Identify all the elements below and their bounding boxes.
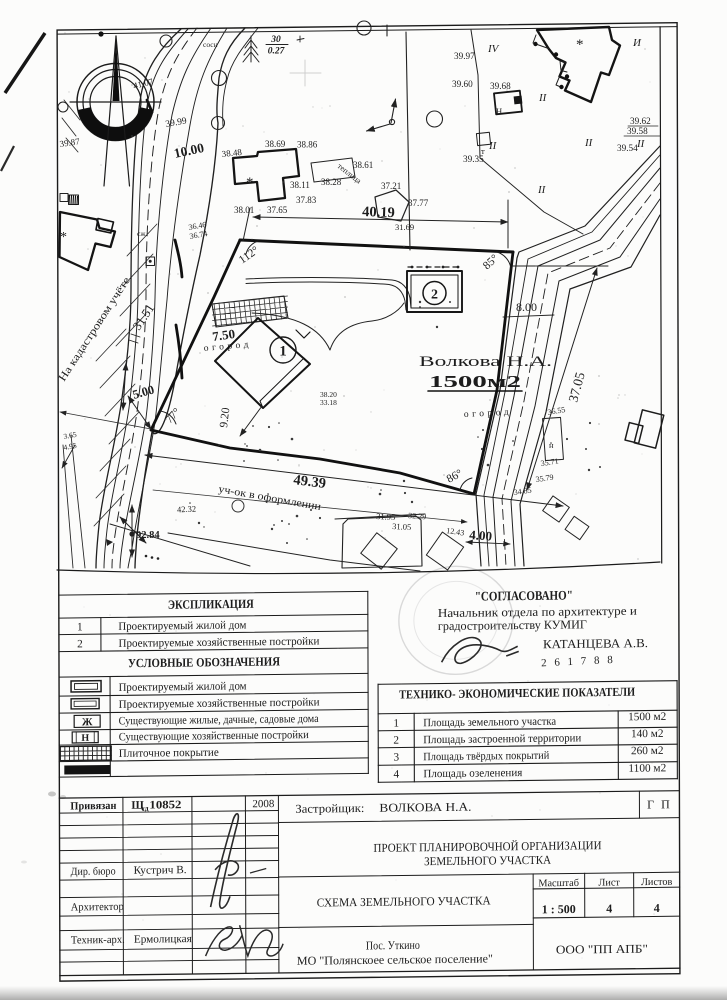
svg-text:37.65: 37.65 [267, 205, 288, 215]
svg-text:*: * [576, 37, 584, 53]
svg-text:Лист: Лист [598, 877, 620, 888]
svg-text:9.20: 9.20 [218, 407, 232, 429]
svg-text:КАТАНЦЕВА А.В.: КАТАНЦЕВА А.В. [543, 636, 648, 651]
svg-text:30: 30 [270, 35, 281, 45]
svg-text:сд: сд [141, 804, 148, 813]
svg-text:ООО "ПП АПБ": ООО "ПП АПБ" [556, 942, 648, 957]
svg-text:39.97: 39.97 [454, 51, 475, 61]
svg-text:1 : 500: 1 : 500 [542, 902, 576, 916]
svg-text:II: II [538, 92, 548, 104]
svg-text:42.32: 42.32 [177, 503, 197, 514]
svg-text:37.77: 37.77 [408, 198, 429, 208]
svg-text:10852: 10852 [149, 799, 181, 811]
svg-text:*: * [246, 175, 254, 191]
svg-text:38.61: 38.61 [353, 160, 373, 170]
svg-text:СХЕМА ЗЕМЕЛЬНОГО УЧАСТКА: СХЕМА ЗЕМЕЛЬНОГО УЧАСТКА [317, 893, 491, 909]
svg-text:Площадь озеленения: Площадь озеленения [423, 767, 522, 780]
svg-text:н: н [549, 440, 554, 450]
svg-text:39.68: 39.68 [490, 81, 511, 91]
svg-text:ПРОЕКТ ПЛАНИРОВОЧНОЙ ОРГАНИЗ: ПРОЕКТ ПЛАНИРОВОЧНОЙ ОРГАНИЗАЦИИ [374, 838, 602, 855]
svg-text:И: И [632, 37, 642, 49]
svg-text:УСЛОВНЫЕ ОБОЗНАЧЕНИЯ: УСЛОВНЫЕ ОБОЗНАЧЕНИЯ [128, 654, 280, 670]
svg-text:ВОЛКОВА Н.А.: ВОЛКОВА Н.А. [379, 800, 471, 815]
svg-text:3: 3 [393, 752, 399, 764]
svg-text:38.11: 38.11 [290, 180, 310, 190]
svg-text:39.35: 39.35 [463, 154, 484, 164]
svg-text:Волкова Н.А.: Волкова Н.А. [419, 354, 552, 370]
svg-text:Привязан: Привязан [70, 800, 117, 813]
svg-text:ТЕХНИКО- ЭКОНОМИЧЕСКИЕ ПОКАЗА: ТЕХНИКО- ЭКОНОМИЧЕСКИЕ ПОКАЗАТЕЛИ [399, 685, 635, 702]
svg-text:Существующие хозяйственные пос: Существующие хозяйственные постройки [119, 729, 309, 743]
svg-text:Кустрич В.: Кустрич В. [134, 864, 187, 877]
svg-text:Листов: Листов [641, 877, 673, 888]
svg-text:8.00: 8.00 [516, 300, 537, 314]
svg-text:Дир. бюро: Дир. бюро [71, 865, 116, 878]
svg-text:37.21: 37.21 [381, 181, 401, 191]
svg-text:Ж: Ж [82, 716, 93, 728]
svg-text:38.69: 38.69 [265, 139, 286, 149]
svg-text:39.54: 39.54 [617, 143, 638, 153]
svg-text:1: 1 [279, 344, 287, 360]
svg-text:Застройщик:: Застройщик: [295, 801, 364, 816]
svg-text:4: 4 [606, 901, 612, 915]
svg-text:0.27: 0.27 [268, 47, 286, 57]
svg-text:Площадь земельного участка: Площадь земельного участка [423, 716, 556, 730]
svg-text:*: * [60, 230, 67, 245]
svg-text:2: 2 [431, 288, 438, 303]
svg-text:Плиточное покрытие: Плиточное покрытие [119, 747, 219, 760]
svg-text:38.01: 38.01 [234, 205, 254, 215]
svg-text:Архитектор: Архитектор [71, 901, 125, 914]
svg-text:2: 2 [393, 735, 399, 747]
svg-text:1500м2: 1500м2 [429, 372, 521, 391]
svg-text:Существующие жилые, дачные, са: Существующие жилые, дачные, садовые дома [119, 713, 319, 727]
svg-text:39.60: 39.60 [452, 79, 473, 89]
svg-text:МО "Полянскоее сельское поселе: МО "Полянскоее сельское поселение" [297, 951, 493, 967]
svg-text:4.00: 4.00 [469, 527, 493, 544]
svg-text:ЗЕМЕЛЬНОГО УЧАСТКА: ЗЕМЕЛЬНОГО УЧАСТКА [424, 853, 551, 869]
svg-text:IV: IV [487, 43, 500, 55]
svg-text:4: 4 [654, 901, 660, 915]
svg-text:градостроительству КУМИГ: градостроительству КУМИГ [438, 617, 587, 633]
svg-text:II: II [537, 184, 547, 196]
svg-text:сосн: сосн [203, 40, 218, 49]
svg-text:II: II [488, 140, 498, 152]
svg-text:Проектируемый жилой дом: Проектируемый жилой дом [119, 680, 247, 694]
svg-text:Площадь застроенной территории: Площадь застроенной территории [423, 732, 581, 746]
svg-text:38.86: 38.86 [297, 140, 318, 150]
svg-text:Площадь твёрдых покрытий: Площадь твёрдых покрытий [423, 750, 549, 764]
svg-text:39.58: 39.58 [627, 126, 648, 136]
svg-text:Масштаб: Масштаб [538, 878, 579, 889]
svg-text:37.83: 37.83 [296, 195, 317, 205]
svg-text:Проектируемый жилой дом: Проектируемый жилой дом [118, 619, 246, 633]
svg-text:Г П: Г П [647, 797, 672, 811]
svg-text:1: 1 [393, 718, 399, 730]
svg-text:Н: Н [496, 106, 502, 116]
svg-text:Ермолицкая: Ермолицкая [134, 933, 192, 946]
svg-text:II: II [584, 137, 594, 149]
svg-text:40.19: 40.19 [362, 204, 395, 221]
svg-text:Техник-арх.: Техник-арх. [71, 934, 125, 947]
svg-text:ЭКСПЛИКАЦИЯ: ЭКСПЛИКАЦИЯ [168, 597, 254, 612]
svg-text:2: 2 [77, 638, 83, 650]
svg-text:1: 1 [77, 621, 83, 633]
svg-text:33.18: 33.18 [320, 398, 337, 407]
svg-text:1100 м2: 1100 м2 [628, 762, 666, 774]
svg-text:сж.: сж. [137, 229, 148, 238]
svg-text:39.62: 39.62 [630, 116, 651, 126]
svg-text:II: II [636, 138, 646, 150]
svg-text:4: 4 [393, 769, 399, 781]
svg-text:"СОГЛАСОВАНО": "СОГЛАСОВАНО" [475, 587, 573, 603]
svg-text:1500 м2: 1500 м2 [628, 711, 667, 723]
svg-text:Пос. Уткино: Пос. Уткино [366, 938, 420, 953]
svg-text:92.84: 92.84 [136, 530, 160, 541]
svg-text:Проектируемые хозяйственные по: Проектируемые хозяйственные постройки [118, 635, 319, 649]
svg-text:2008: 2008 [252, 798, 275, 810]
svg-text:260 м2: 260 м2 [631, 745, 664, 757]
svg-text:Проектируемые хозяйственные по: Проектируемые хозяйственные постройки [119, 696, 320, 710]
svg-text:31.69: 31.69 [395, 222, 414, 232]
svg-text:Н: Н [81, 733, 89, 744]
svg-text:140 м2: 140 м2 [631, 728, 664, 740]
svg-text:31.05: 31.05 [392, 521, 412, 532]
